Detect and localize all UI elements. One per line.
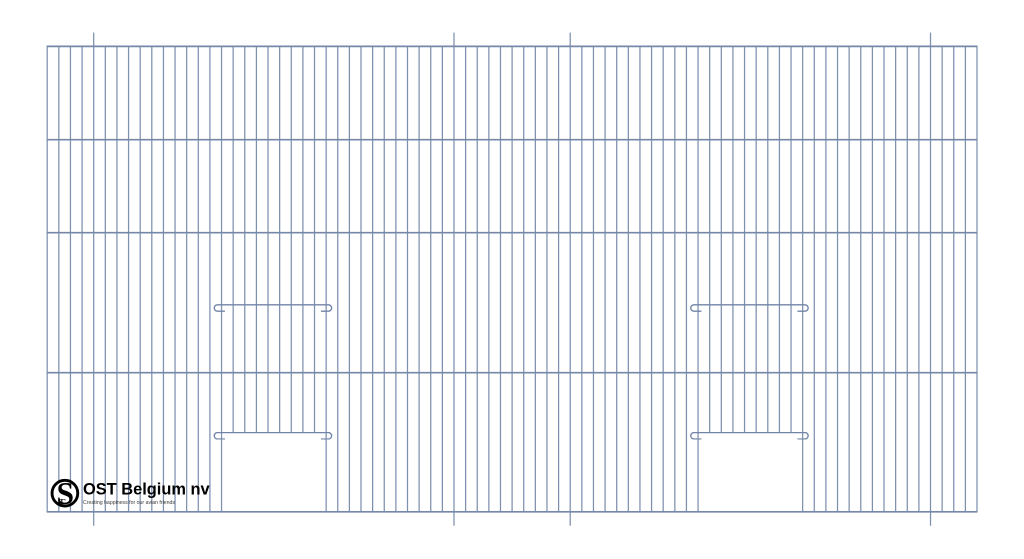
svg-text:Creating happiness for our avi: Creating happiness for our avian friends — [83, 500, 175, 506]
svg-text:OST Belgium nv: OST Belgium nv — [83, 481, 210, 499]
svg-text:T: T — [58, 496, 66, 510]
